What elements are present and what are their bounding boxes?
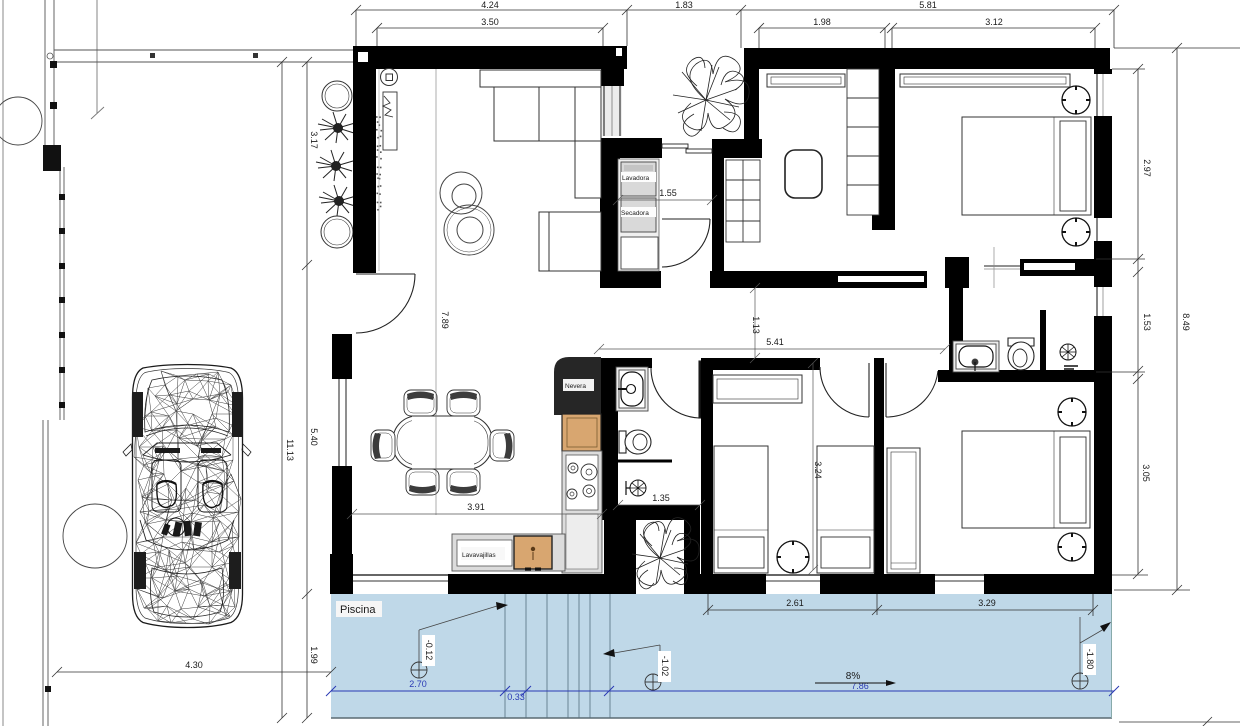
svg-text:-1.80: -1.80 [1085, 649, 1095, 670]
svg-text:8.49: 8.49 [1181, 313, 1191, 331]
svg-text:5.41: 5.41 [766, 337, 784, 347]
svg-text:2.97: 2.97 [1142, 159, 1152, 177]
svg-text:3.50: 3.50 [481, 17, 499, 27]
svg-text:3.24: 3.24 [813, 461, 823, 479]
svg-text:Lavavajillas: Lavavajillas [462, 552, 496, 559]
svg-text:1.99: 1.99 [309, 646, 319, 664]
svg-text:7.89: 7.89 [440, 311, 450, 329]
svg-text:4.30: 4.30 [185, 660, 203, 670]
svg-text:-1.02: -1.02 [660, 656, 670, 677]
svg-text:Nevera: Nevera [565, 383, 586, 390]
svg-text:3.05: 3.05 [1141, 464, 1151, 482]
svg-text:3.17: 3.17 [309, 131, 319, 149]
svg-text:Piscina: Piscina [340, 604, 376, 616]
svg-text:5.40: 5.40 [309, 428, 319, 446]
svg-text:1.35: 1.35 [652, 493, 670, 503]
svg-text:Secadora: Secadora [621, 210, 649, 217]
svg-text:8%: 8% [846, 671, 861, 682]
svg-text:-0.12: -0.12 [424, 640, 434, 661]
svg-text:1.83: 1.83 [675, 0, 693, 10]
svg-text:5.81: 5.81 [919, 0, 937, 10]
svg-text:3.29: 3.29 [978, 598, 996, 608]
svg-text:11.13: 11.13 [285, 439, 295, 461]
svg-text:2.61: 2.61 [786, 598, 804, 608]
svg-text:1.98: 1.98 [813, 17, 831, 27]
svg-text:4.24: 4.24 [481, 0, 499, 10]
svg-text:3.12: 3.12 [985, 17, 1003, 27]
svg-text:2.70: 2.70 [409, 679, 427, 689]
svg-text:3.91: 3.91 [467, 502, 485, 512]
svg-text:Lavadora: Lavadora [622, 175, 649, 182]
svg-text:1.55: 1.55 [659, 188, 677, 198]
svg-text:1.13: 1.13 [751, 316, 761, 334]
svg-text:0.33: 0.33 [507, 692, 525, 702]
svg-text:1.53: 1.53 [1142, 313, 1152, 331]
